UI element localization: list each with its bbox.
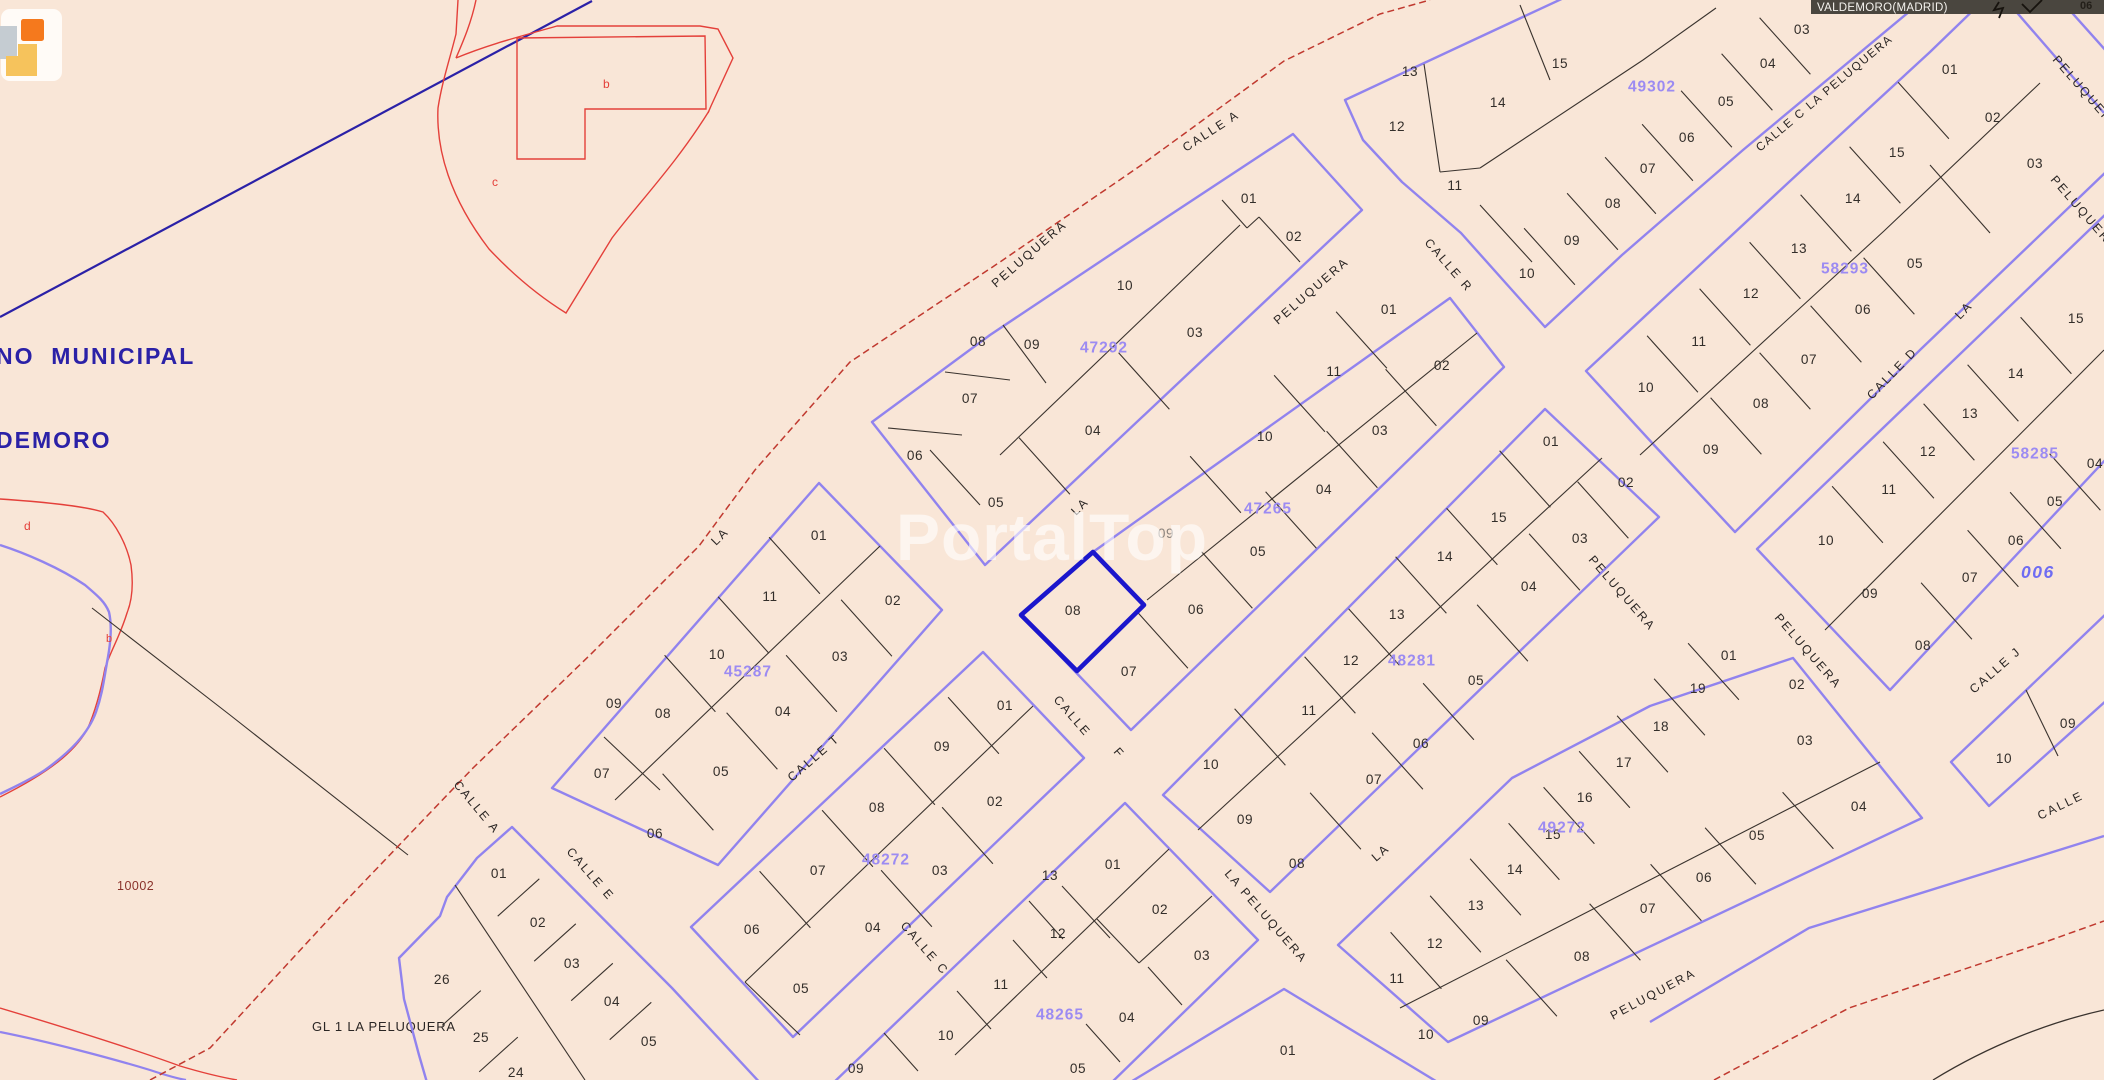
svg-text:15: 15 — [2068, 311, 2084, 326]
svg-text:09: 09 — [848, 1061, 864, 1076]
svg-text:07: 07 — [1121, 664, 1137, 679]
svg-text:14: 14 — [1845, 191, 1861, 206]
svg-text:01: 01 — [1381, 302, 1397, 317]
svg-text:09: 09 — [1237, 812, 1253, 827]
svg-text:12: 12 — [1050, 926, 1066, 941]
svg-text:58285: 58285 — [2011, 446, 2059, 463]
svg-text:08: 08 — [869, 800, 885, 815]
svg-text:08: 08 — [1605, 196, 1621, 211]
svg-text:03: 03 — [1794, 22, 1810, 37]
svg-text:12: 12 — [1427, 936, 1443, 951]
svg-text:06: 06 — [647, 826, 663, 841]
svg-text:10: 10 — [709, 647, 725, 662]
svg-text:03: 03 — [1372, 423, 1388, 438]
svg-text:49272: 49272 — [1538, 820, 1586, 837]
svg-text:04: 04 — [2087, 456, 2103, 471]
svg-text:11: 11 — [1389, 971, 1404, 986]
svg-text:05: 05 — [1749, 828, 1765, 843]
svg-text:05: 05 — [1250, 544, 1266, 559]
svg-text:47292: 47292 — [1080, 340, 1128, 357]
svg-text:GL 1 LA PELUQUERA: GL 1 LA PELUQUERA — [312, 1019, 456, 1034]
svg-text:04: 04 — [1760, 56, 1776, 71]
svg-text:25: 25 — [473, 1030, 489, 1045]
svg-text:13: 13 — [1042, 868, 1058, 883]
svg-text:006: 006 — [2021, 562, 2055, 582]
svg-text:08: 08 — [970, 334, 986, 349]
svg-text:09: 09 — [2060, 716, 2076, 731]
svg-text:06: 06 — [1855, 302, 1871, 317]
svg-text:17: 17 — [1616, 755, 1632, 770]
svg-text:08: 08 — [655, 706, 671, 721]
svg-text:48281: 48281 — [1388, 653, 1436, 670]
svg-text:04: 04 — [1851, 799, 1867, 814]
svg-text:VALDEMORO(MADRID): VALDEMORO(MADRID) — [1817, 2, 1948, 14]
svg-text:09: 09 — [934, 739, 950, 754]
svg-text:DEMORO: DEMORO — [0, 427, 112, 453]
svg-text:09: 09 — [606, 696, 622, 711]
svg-text:02: 02 — [1434, 358, 1450, 373]
svg-text:03: 03 — [2027, 156, 2043, 171]
svg-text:04: 04 — [1521, 579, 1537, 594]
svg-text:07: 07 — [1640, 161, 1656, 176]
svg-text:58293: 58293 — [1821, 261, 1869, 278]
svg-text:12: 12 — [1743, 286, 1759, 301]
svg-text:09: 09 — [1473, 1013, 1489, 1028]
svg-text:07: 07 — [594, 766, 610, 781]
svg-text:04: 04 — [604, 994, 620, 1009]
svg-text:05: 05 — [1907, 256, 1923, 271]
svg-text:15: 15 — [1552, 56, 1568, 71]
svg-text:01: 01 — [997, 698, 1013, 713]
svg-text:03: 03 — [1187, 325, 1203, 340]
svg-text:09: 09 — [1862, 586, 1878, 601]
svg-text:02: 02 — [885, 593, 901, 608]
svg-text:03: 03 — [1194, 948, 1210, 963]
svg-text:11: 11 — [993, 977, 1008, 992]
svg-text:01: 01 — [1241, 191, 1257, 206]
svg-text:05: 05 — [2047, 494, 2063, 509]
svg-text:09: 09 — [1703, 442, 1719, 457]
svg-text:10: 10 — [1257, 429, 1273, 444]
svg-text:47265: 47265 — [1244, 501, 1292, 518]
svg-text:08: 08 — [1065, 603, 1081, 618]
svg-text:07: 07 — [810, 863, 826, 878]
svg-text:04: 04 — [1085, 423, 1101, 438]
svg-text:06: 06 — [1679, 130, 1695, 145]
svg-text:06: 06 — [1696, 870, 1712, 885]
svg-text:01: 01 — [1721, 648, 1737, 663]
svg-text:05: 05 — [641, 1034, 657, 1049]
svg-text:b: b — [106, 633, 112, 645]
svg-text:14: 14 — [1437, 549, 1453, 564]
svg-text:14: 14 — [1490, 95, 1506, 110]
svg-text:08: 08 — [1289, 856, 1305, 871]
svg-text:11: 11 — [1881, 482, 1896, 497]
svg-text:01: 01 — [1543, 434, 1559, 449]
svg-text:45287: 45287 — [724, 664, 772, 681]
svg-text:01: 01 — [491, 866, 507, 881]
svg-text:03: 03 — [564, 956, 580, 971]
svg-text:08: 08 — [1753, 396, 1769, 411]
svg-text:06: 06 — [2080, 0, 2092, 12]
svg-text:04: 04 — [1119, 1010, 1135, 1025]
svg-text:b: b — [603, 77, 610, 91]
svg-text:10002: 10002 — [117, 879, 154, 893]
svg-text:02: 02 — [1286, 229, 1302, 244]
svg-text:03: 03 — [1572, 531, 1588, 546]
svg-text:03: 03 — [832, 649, 848, 664]
svg-text:d: d — [24, 519, 31, 533]
svg-text:01: 01 — [1280, 1043, 1296, 1058]
svg-text:14: 14 — [1507, 862, 1523, 877]
svg-text:04: 04 — [1316, 482, 1332, 497]
svg-text:06: 06 — [907, 448, 923, 463]
svg-text:09: 09 — [1024, 337, 1040, 352]
svg-text:10: 10 — [1418, 1027, 1434, 1042]
svg-text:48265: 48265 — [1036, 1007, 1084, 1024]
svg-text:12: 12 — [1389, 119, 1405, 134]
svg-text:10: 10 — [1117, 278, 1133, 293]
svg-text:19: 19 — [1690, 681, 1706, 696]
svg-text:NO MUNICIPAL: NO MUNICIPAL — [0, 343, 195, 369]
svg-text:01: 01 — [1942, 62, 1958, 77]
svg-text:02: 02 — [1985, 110, 2001, 125]
svg-text:10: 10 — [1996, 751, 2012, 766]
svg-text:05: 05 — [793, 981, 809, 996]
svg-text:11: 11 — [1691, 334, 1706, 349]
svg-text:11: 11 — [1447, 178, 1462, 193]
svg-text:10: 10 — [1203, 757, 1219, 772]
svg-text:10: 10 — [938, 1028, 954, 1043]
svg-text:08: 08 — [1574, 949, 1590, 964]
svg-text:08: 08 — [1915, 638, 1931, 653]
svg-text:06: 06 — [744, 922, 760, 937]
svg-text:13: 13 — [1389, 607, 1405, 622]
svg-text:02: 02 — [530, 915, 546, 930]
svg-text:14: 14 — [2008, 366, 2024, 381]
svg-text:10: 10 — [1519, 266, 1535, 281]
svg-text:13: 13 — [1791, 241, 1807, 256]
svg-text:07: 07 — [1962, 570, 1978, 585]
svg-text:26: 26 — [434, 972, 450, 987]
svg-text:07: 07 — [1640, 901, 1656, 916]
svg-text:11: 11 — [1326, 364, 1341, 379]
svg-text:05: 05 — [1468, 673, 1484, 688]
svg-text:04: 04 — [775, 704, 791, 719]
svg-text:10: 10 — [1638, 380, 1654, 395]
svg-text:12: 12 — [1920, 444, 1936, 459]
svg-text:05: 05 — [1070, 1061, 1086, 1076]
svg-text:48272: 48272 — [862, 852, 910, 869]
svg-text:05: 05 — [713, 764, 729, 779]
svg-text:06: 06 — [2008, 533, 2024, 548]
svg-text:06: 06 — [1413, 736, 1429, 751]
svg-text:03: 03 — [932, 863, 948, 878]
svg-text:02: 02 — [1618, 475, 1634, 490]
svg-text:49302: 49302 — [1628, 79, 1676, 96]
svg-text:02: 02 — [1152, 902, 1168, 917]
svg-text:PortalTop: PortalTop — [896, 500, 1208, 574]
svg-text:13: 13 — [1962, 406, 1978, 421]
svg-text:24: 24 — [508, 1065, 524, 1080]
svg-text:07: 07 — [962, 391, 978, 406]
svg-text:15: 15 — [1889, 145, 1905, 160]
svg-text:07: 07 — [1801, 352, 1817, 367]
svg-text:c: c — [492, 175, 498, 189]
svg-text:06: 06 — [1188, 602, 1204, 617]
svg-text:13: 13 — [1468, 898, 1484, 913]
svg-text:01: 01 — [811, 528, 827, 543]
svg-text:11: 11 — [1301, 703, 1316, 718]
svg-text:16: 16 — [1577, 790, 1593, 805]
svg-text:02: 02 — [987, 794, 1003, 809]
svg-text:10: 10 — [1818, 533, 1834, 548]
svg-text:15: 15 — [1491, 510, 1507, 525]
svg-text:03: 03 — [1797, 733, 1813, 748]
svg-text:04: 04 — [865, 920, 881, 935]
svg-text:11: 11 — [762, 589, 777, 604]
svg-text:18: 18 — [1653, 719, 1669, 734]
svg-text:12: 12 — [1343, 653, 1359, 668]
svg-text:05: 05 — [1718, 94, 1734, 109]
svg-text:07: 07 — [1366, 772, 1382, 787]
svg-text:09: 09 — [1564, 233, 1580, 248]
svg-text:02: 02 — [1789, 677, 1805, 692]
svg-text:01: 01 — [1105, 857, 1121, 872]
svg-text:13: 13 — [1402, 64, 1418, 79]
